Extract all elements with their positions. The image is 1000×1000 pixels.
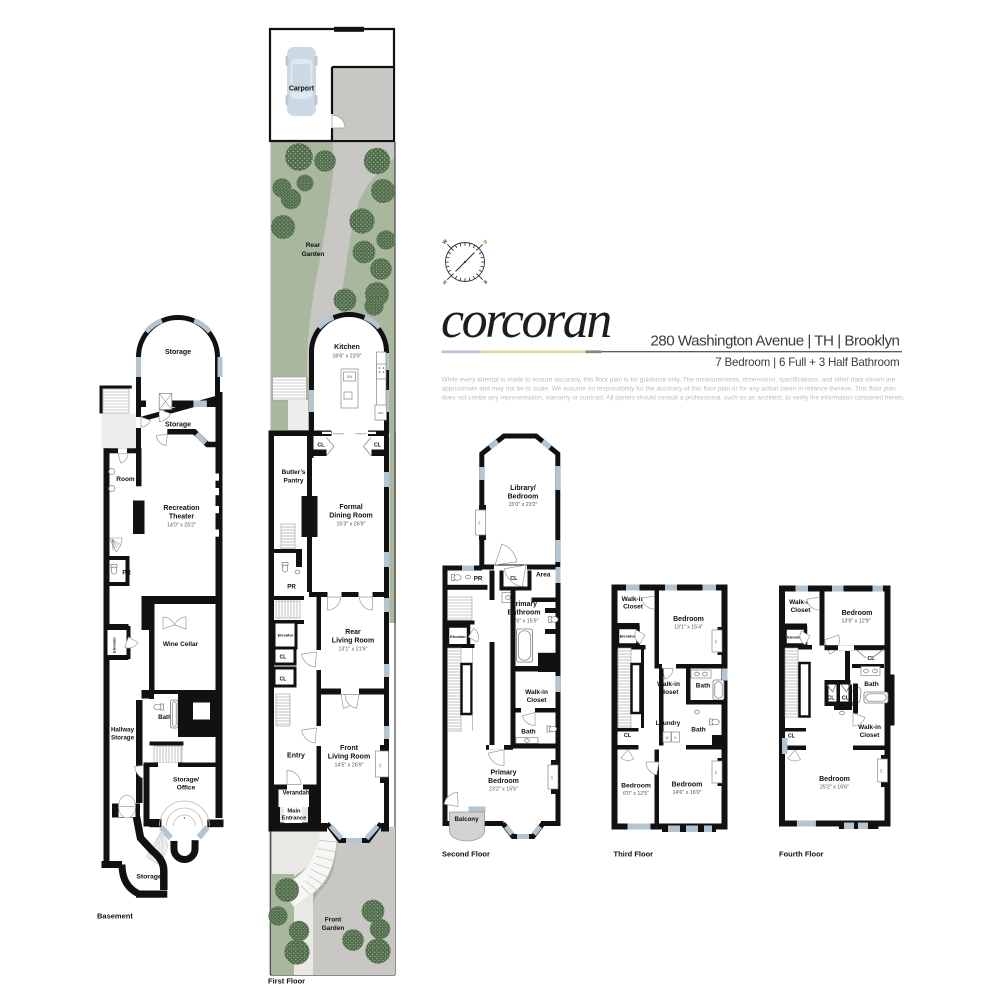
svg-text:Elevator: Elevator [112, 637, 117, 653]
svg-text:Storage: Storage [111, 735, 135, 742]
svg-text:Recreation: Recreation [163, 505, 199, 512]
svg-text:Verandah: Verandah [282, 791, 309, 797]
svg-text:14′0″ x 25′2″: 14′0″ x 25′2″ [167, 523, 196, 529]
svg-text:13′9″ x 12′9″: 13′9″ x 12′9″ [841, 619, 870, 625]
svg-text:Front: Front [325, 917, 342, 924]
svg-text:14′5″ x 26′9″: 14′5″ x 26′9″ [334, 763, 363, 769]
svg-text:CL: CL [280, 655, 287, 661]
svg-text:16′6″ x 23′0″: 16′6″ x 23′0″ [332, 354, 361, 360]
svg-text:Bedroom: Bedroom [842, 610, 873, 617]
svg-text:Primary: Primary [490, 770, 516, 777]
svg-text:25′2″ x 16′6″: 25′2″ x 16′6″ [820, 785, 849, 791]
svg-text:Bedroom: Bedroom [819, 776, 850, 783]
svg-text:does not create any representa: does not create any representation, warr… [442, 395, 905, 402]
svg-text:Walk-in: Walk-in [858, 724, 881, 731]
svg-text:Second Floor: Second Floor [442, 850, 490, 859]
svg-text:DW: DW [347, 375, 352, 379]
svg-text:Garden: Garden [302, 251, 325, 258]
svg-text:Garden: Garden [322, 925, 345, 932]
svg-text:FP: FP [478, 521, 482, 525]
svg-text:Formal: Formal [339, 504, 362, 511]
svg-text:Theater: Theater [169, 514, 195, 521]
svg-text:Storage: Storage [165, 422, 191, 429]
svg-text:Front: Front [340, 745, 359, 752]
svg-text:CL: CL [280, 677, 287, 683]
svg-text:approximate and may not be to: approximate and may not be to scale. We … [442, 386, 897, 393]
svg-text:FP: FP [880, 769, 884, 773]
svg-text:CL: CL [510, 576, 518, 582]
svg-text:corcoran: corcoran [441, 292, 610, 349]
svg-text:Walk-in: Walk-in [622, 596, 645, 603]
svg-text:Wine Cellar: Wine Cellar [163, 641, 199, 648]
svg-text:Walk-in: Walk-in [525, 689, 548, 696]
svg-text:Bedroom: Bedroom [488, 778, 519, 785]
svg-text:Bedroom: Bedroom [508, 494, 539, 501]
svg-text:First Floor: First Floor [268, 977, 305, 986]
svg-text:7 Bedroom | 6 Full + 3 Half Ba: 7 Bedroom | 6 Full + 3 Half Bathroom [715, 356, 899, 369]
svg-text:Balcony: Balcony [454, 816, 479, 823]
svg-text:Elevator: Elevator [278, 633, 294, 638]
svg-text:Bedroom: Bedroom [621, 783, 651, 790]
svg-text:Carport: Carport [289, 86, 315, 93]
svg-text:Closet: Closet [791, 607, 812, 614]
svg-text:Storage/: Storage/ [173, 777, 199, 784]
svg-text:CL: CL [788, 734, 796, 740]
svg-text:Butler’s: Butler’s [282, 469, 306, 476]
svg-text:CL: CL [624, 733, 632, 739]
svg-text:PR: PR [287, 584, 296, 591]
svg-text:Laundry: Laundry [656, 720, 681, 727]
svg-text:FP: FP [714, 640, 718, 644]
svg-text:Room: Room [116, 476, 135, 483]
svg-text:Dining Room: Dining Room [329, 513, 373, 520]
svg-text:REF: REF [378, 411, 384, 415]
svg-text:Bath: Bath [691, 727, 705, 734]
svg-text:280 Washington Avenue | TH | B: 280 Washington Avenue | TH | Brooklyn [650, 332, 899, 349]
svg-text:Bedroom: Bedroom [672, 782, 703, 789]
svg-text:Living Room: Living Room [328, 754, 370, 761]
svg-text:Third Floor: Third Floor [614, 850, 654, 859]
svg-text:FP: FP [379, 764, 383, 768]
svg-text:Office: Office [177, 785, 196, 792]
svg-text:Entrance: Entrance [282, 816, 308, 822]
svg-text:Bath: Bath [158, 714, 172, 721]
svg-text:CL: CL [317, 443, 325, 449]
svg-text:Rear: Rear [306, 242, 321, 249]
svg-text:14′6″ x 16′0″: 14′6″ x 16′0″ [672, 790, 701, 796]
svg-text:Closet: Closet [623, 604, 644, 611]
svg-text:6′0″ x 12′5″: 6′0″ x 12′5″ [623, 791, 649, 797]
svg-text:Entry: Entry [287, 753, 305, 760]
svg-text:Hallway: Hallway [111, 727, 135, 734]
svg-text:15′3″ x 26′9″: 15′3″ x 26′9″ [336, 522, 365, 528]
svg-text:Elevator: Elevator [620, 634, 636, 639]
svg-text:Library/: Library/ [510, 485, 536, 492]
svg-text:Bath: Bath [521, 729, 535, 736]
svg-text:Storage: Storage [136, 874, 162, 881]
svg-text:13′1″ x 21′6″: 13′1″ x 21′6″ [338, 647, 367, 653]
svg-text:Bath: Bath [864, 681, 878, 688]
svg-text:PR: PR [474, 576, 483, 583]
svg-text:Rear: Rear [345, 629, 361, 636]
svg-text:FP: FP [550, 776, 554, 780]
svg-text:Elevator: Elevator [450, 634, 466, 639]
svg-text:Storage: Storage [165, 349, 191, 356]
svg-text:13′1″ x 15′4″: 13′1″ x 15′4″ [674, 625, 703, 631]
svg-text:While every attempt is made to: While every attempt is made to ensure ac… [442, 377, 896, 384]
svg-text:Bath: Bath [696, 683, 710, 690]
svg-text:Closet: Closet [860, 732, 881, 739]
svg-text:Closet: Closet [527, 697, 548, 704]
svg-text:Fourth Floor: Fourth Floor [779, 850, 824, 859]
svg-text:W: W [665, 736, 668, 740]
svg-text:23′2″ x 15′5″: 23′2″ x 15′5″ [489, 787, 518, 793]
svg-text:CL: CL [374, 443, 382, 449]
svg-text:15′0″ x 23′2″: 15′0″ x 23′2″ [508, 502, 537, 508]
svg-text:Basement: Basement [97, 912, 133, 921]
svg-text:Main: Main [287, 809, 301, 815]
svg-text:Living Room: Living Room [332, 638, 374, 645]
svg-text:Bedroom: Bedroom [673, 616, 704, 623]
svg-text:Kitchen: Kitchen [334, 344, 360, 351]
svg-text:Area: Area [536, 572, 551, 579]
svg-text:Pantry: Pantry [284, 478, 304, 485]
svg-text:CL: CL [827, 696, 835, 702]
svg-text:FP: FP [714, 771, 718, 775]
